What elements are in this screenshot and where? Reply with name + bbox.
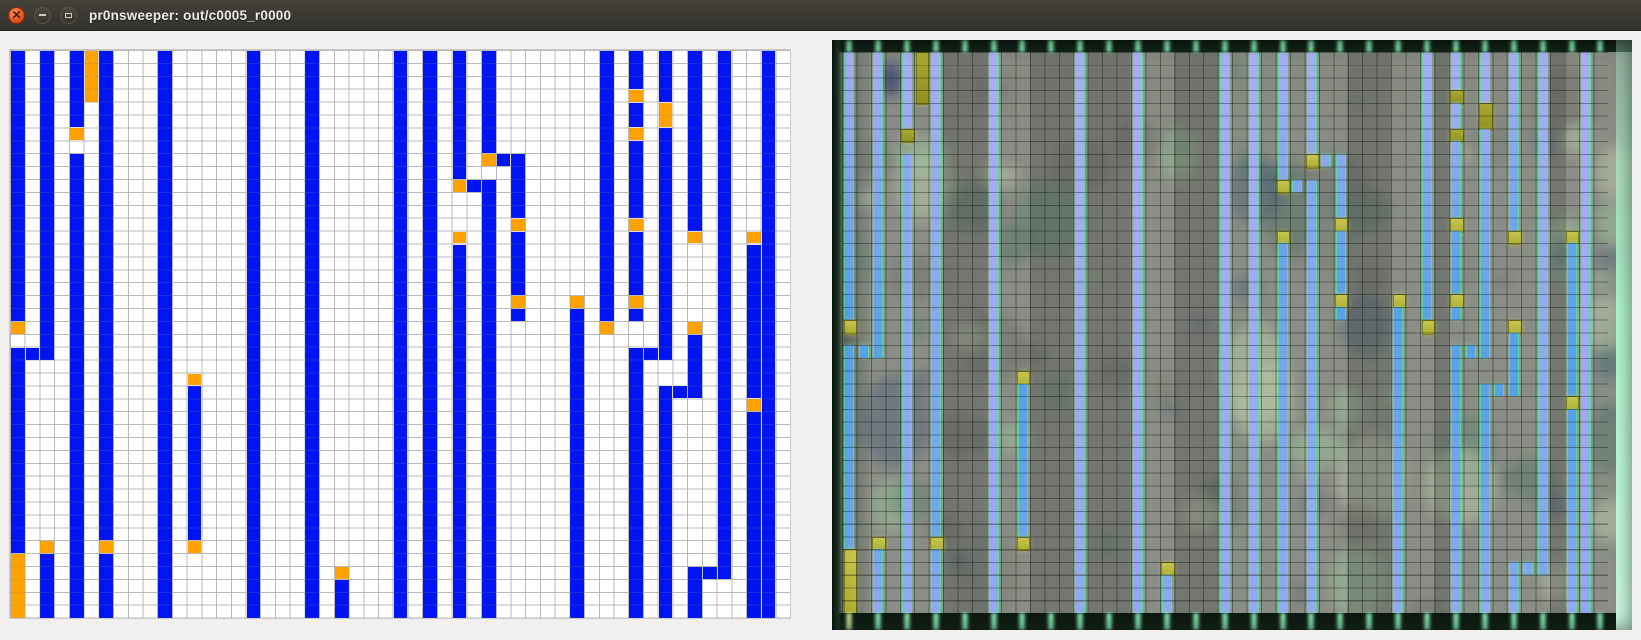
band-streak	[1423, 40, 1431, 52]
texture-blob	[1355, 259, 1384, 299]
band-streak	[1596, 613, 1604, 630]
die-flag-blob	[844, 549, 857, 615]
die-trace	[1480, 129, 1490, 359]
texture-blob	[1008, 339, 1037, 372]
band-streak	[1134, 40, 1142, 52]
texture-blob	[1352, 96, 1365, 106]
bit-mark-blue[interactable]	[659, 128, 673, 359]
bit-flag-orange[interactable]	[600, 322, 614, 334]
band-streak	[1047, 40, 1055, 52]
texture-blob	[853, 245, 874, 276]
die-trace	[1133, 52, 1143, 613]
die-trace	[1249, 52, 1259, 613]
die-photo-panel[interactable]	[832, 40, 1632, 630]
bit-flag-orange[interactable]	[188, 374, 202, 386]
pr0nsweeper-window: ✕ pr0nsweeper: out/c0005_r0000	[0, 0, 1641, 640]
bit-mark-blue[interactable]	[629, 232, 643, 296]
bit-mark-blue[interactable]	[70, 51, 84, 127]
bit-flag-orange[interactable]	[629, 90, 643, 102]
band-streak	[961, 613, 969, 630]
bit-mark-blue[interactable]	[305, 51, 319, 618]
bit-flag-orange[interactable]	[482, 154, 496, 166]
band-streak	[1394, 40, 1402, 52]
bit-mark-blue[interactable]	[394, 51, 408, 618]
bit-flag-orange[interactable]	[570, 296, 584, 308]
band-streak	[845, 613, 853, 630]
close-icon: ✕	[11, 9, 21, 21]
bit-flag-orange[interactable]	[511, 296, 525, 308]
texture-blob	[891, 137, 950, 175]
die-trace	[1075, 52, 1085, 613]
bit-flag-orange[interactable]	[40, 541, 54, 553]
band-streak	[1481, 613, 1489, 630]
band-streak	[1452, 613, 1460, 630]
texture-blob	[1035, 350, 1046, 364]
band-streak	[1221, 613, 1229, 630]
dark-column-zone	[1030, 52, 1073, 613]
bit-flag-orange[interactable]	[85, 51, 99, 102]
bit-flag-orange[interactable]	[511, 219, 525, 231]
bit-mark-blue[interactable]	[659, 386, 673, 617]
texture-blob	[1161, 402, 1177, 417]
dark-column-zone	[1174, 52, 1217, 613]
die-trace	[1494, 384, 1504, 397]
die-trace	[1278, 243, 1288, 613]
bit-mark-blue[interactable]	[511, 154, 525, 218]
bit-mark-blue[interactable]	[40, 51, 54, 360]
die-trace	[844, 345, 854, 549]
bit-mark-blue[interactable]	[11, 348, 25, 553]
bit-mark-blue[interactable]	[158, 51, 172, 618]
texture-blob	[1594, 347, 1619, 381]
die-trace	[1451, 307, 1461, 320]
dark-column-zone	[1434, 52, 1448, 613]
bit-mark-blue[interactable]	[762, 51, 776, 618]
die-trace	[931, 549, 941, 613]
die-trace	[1336, 231, 1346, 295]
texture-blob	[1596, 248, 1622, 269]
bit-flag-orange[interactable]	[11, 322, 25, 334]
die-flag-blob	[1306, 154, 1319, 169]
bit-mark-blue[interactable]	[247, 51, 261, 618]
bit-mark-blue[interactable]	[497, 154, 511, 166]
band-streak	[1568, 40, 1576, 52]
band-streak	[1105, 40, 1113, 52]
band-streak	[1365, 613, 1373, 630]
die-trace	[1422, 52, 1432, 320]
band-streak	[1481, 40, 1489, 52]
texture-blob	[1596, 200, 1632, 247]
die-trace	[931, 52, 941, 537]
die-trace	[1567, 409, 1577, 613]
die-flag-blob	[1479, 103, 1492, 131]
texture-blob	[1595, 145, 1632, 200]
bit-mark-blue[interactable]	[570, 309, 584, 618]
band-streak	[1336, 40, 1344, 52]
die-trace	[1509, 562, 1519, 613]
bit-mark-blue[interactable]	[688, 567, 702, 618]
die-flag-blob	[901, 129, 914, 144]
bit-flag-orange[interactable]	[453, 180, 467, 192]
band-streak	[1018, 613, 1026, 630]
bit-flag-orange[interactable]	[453, 232, 467, 244]
maximize-icon	[65, 13, 72, 18]
die-trace	[1393, 307, 1403, 613]
bit-mark-blue[interactable]	[659, 51, 673, 102]
die-trace	[1220, 52, 1230, 613]
die-trace	[844, 52, 854, 320]
texture-blob	[1331, 387, 1363, 430]
texture-blob	[1337, 507, 1381, 547]
texture-blob	[1042, 374, 1072, 411]
texture-blob	[951, 323, 987, 352]
bit-mark-blue[interactable]	[688, 51, 702, 231]
band-streak	[874, 40, 882, 52]
die-trace	[1162, 575, 1172, 613]
die-trace	[989, 52, 999, 613]
die-flag-blob	[1422, 320, 1435, 335]
die-trace	[1321, 154, 1331, 167]
die-trace	[1307, 180, 1317, 614]
die-trace	[873, 52, 883, 358]
bit-flag-orange[interactable]	[688, 232, 702, 244]
band-streak	[1192, 613, 1200, 630]
bit-mark-blue[interactable]	[40, 554, 54, 618]
band-streak	[874, 613, 882, 630]
window-title: pr0nsweeper: out/c0005_r0000	[89, 8, 291, 23]
band-streak	[990, 40, 998, 52]
band-streak	[1539, 613, 1547, 630]
die-flag-blob	[1277, 180, 1290, 195]
bit-mark-blue[interactable]	[482, 51, 496, 153]
texture-blob	[1085, 272, 1095, 285]
band-streak	[1192, 40, 1200, 52]
die-trace	[859, 345, 869, 358]
band-streak	[1596, 40, 1604, 52]
band-streak	[1076, 613, 1084, 630]
texture-blob	[1494, 271, 1512, 291]
bit-grid-panel[interactable]	[10, 50, 790, 618]
die-trace	[1567, 243, 1577, 396]
bit-flag-orange[interactable]	[99, 541, 113, 553]
die-trace	[1336, 154, 1346, 218]
texture-blob	[1502, 458, 1557, 500]
band-streak	[1365, 40, 1373, 52]
bit-mark-blue[interactable]	[629, 309, 643, 321]
bit-mark-blue[interactable]	[11, 51, 25, 321]
dark-column-zone	[1348, 52, 1391, 613]
titlebar[interactable]: ✕ pr0nsweeper: out/c0005_r0000	[0, 0, 1641, 31]
bit-mark-blue[interactable]	[629, 141, 643, 217]
dark-column-zone	[1088, 52, 1131, 613]
bit-mark-blue[interactable]	[188, 386, 202, 540]
bit-mark-blue[interactable]	[511, 232, 525, 296]
minimize-icon	[39, 14, 46, 16]
band-streak	[961, 40, 969, 52]
band-streak	[932, 40, 940, 52]
bit-mark-blue[interactable]	[467, 180, 481, 192]
texture-blob	[1193, 315, 1206, 331]
band-streak	[903, 40, 911, 52]
bit-mark-blue[interactable]	[703, 567, 717, 579]
bit-flag-orange[interactable]	[629, 296, 643, 308]
band-streak	[1250, 613, 1258, 630]
die-flag-blob	[1017, 537, 1030, 552]
die-flag-blob	[916, 52, 929, 105]
texture-blob	[980, 163, 1018, 189]
bit-mark-blue[interactable]	[718, 51, 732, 579]
band-streak	[1279, 40, 1287, 52]
texture-blob	[1586, 500, 1632, 544]
band-streak	[1568, 613, 1576, 630]
band-streak	[1307, 613, 1315, 630]
die-trace	[1480, 384, 1490, 614]
band-streak	[1163, 613, 1171, 630]
bit-flag-orange[interactable]	[659, 103, 673, 128]
bit-mark-blue[interactable]	[335, 580, 349, 618]
maximize-button[interactable]	[60, 7, 77, 24]
bit-flag-orange[interactable]	[629, 219, 643, 231]
die-trace	[1451, 52, 1461, 90]
texture-blob	[1150, 371, 1179, 412]
bit-flag-orange[interactable]	[70, 128, 84, 140]
texture-blob	[860, 375, 931, 468]
dark-column-zone	[1550, 52, 1564, 613]
bit-mark-blue[interactable]	[70, 154, 84, 617]
bit-mark-blue[interactable]	[747, 412, 761, 617]
die-trace	[1509, 333, 1519, 397]
bit-flag-orange[interactable]	[335, 567, 349, 579]
texture-blob	[1589, 273, 1610, 288]
bit-mark-blue[interactable]	[629, 103, 643, 128]
texture-blob	[1465, 264, 1479, 273]
texture-blob	[1364, 342, 1380, 359]
band-streak	[990, 613, 998, 630]
dark-column-zone	[943, 52, 986, 613]
bit-flag-orange[interactable]	[11, 554, 25, 618]
bit-mark-blue[interactable]	[688, 335, 702, 399]
texture-blob	[1291, 153, 1300, 161]
bit-flag-orange[interactable]	[747, 399, 761, 411]
die-trace	[1451, 345, 1461, 613]
band-streak	[1250, 40, 1258, 52]
texture-blob	[1601, 316, 1632, 379]
die-trace	[1278, 52, 1288, 180]
bit-mark-blue[interactable]	[99, 554, 113, 618]
bit-mark-blue[interactable]	[99, 51, 113, 540]
band-streak	[1452, 40, 1460, 52]
bit-flag-orange[interactable]	[688, 322, 702, 334]
die-trace	[1336, 307, 1346, 320]
die-trace	[1018, 384, 1028, 537]
die-flag-blob	[844, 320, 857, 335]
photo-left-edge	[832, 40, 842, 630]
bit-mark-blue[interactable]	[482, 180, 496, 618]
band-streak	[1163, 40, 1171, 52]
die-trace	[1523, 562, 1533, 575]
bit-mark-blue[interactable]	[644, 348, 658, 360]
die-flag-blob	[1508, 231, 1521, 246]
texture-blob	[1329, 545, 1386, 621]
die-trace	[1451, 141, 1461, 218]
die-trace	[1581, 52, 1591, 613]
photo-right-edge	[1616, 40, 1632, 630]
band-streak	[1047, 613, 1055, 630]
texture-blob	[1587, 405, 1632, 474]
minimize-button[interactable]	[34, 7, 51, 24]
texture-blob	[1159, 130, 1197, 181]
bit-mark-blue[interactable]	[511, 309, 525, 321]
band-streak	[1076, 40, 1084, 52]
band-streak	[1018, 40, 1026, 52]
die-trace	[1509, 52, 1519, 231]
band-streak	[845, 40, 853, 52]
texture-blob	[957, 533, 1017, 620]
band-streak	[1105, 613, 1113, 630]
bit-mark-blue[interactable]	[629, 51, 643, 89]
die-trace	[1292, 180, 1302, 193]
texture-blob	[1601, 406, 1613, 418]
die-trace	[1307, 52, 1317, 154]
bit-mark-blue[interactable]	[423, 51, 437, 618]
bit-flag-orange[interactable]	[629, 128, 643, 140]
dark-stain	[880, 62, 902, 96]
bit-mark-blue[interactable]	[26, 348, 40, 360]
bit-flag-orange[interactable]	[747, 232, 761, 244]
texture-blob	[1003, 472, 1014, 481]
bit-mark-blue[interactable]	[629, 348, 643, 618]
bit-mark-blue[interactable]	[600, 51, 614, 321]
band-streak	[903, 613, 911, 630]
band-streak	[1510, 40, 1518, 52]
die-trace	[1480, 52, 1490, 103]
band-streak	[1279, 613, 1287, 630]
texture-blob	[1173, 141, 1187, 153]
die-trace	[902, 52, 912, 129]
band-streak	[1510, 613, 1518, 630]
band-streak	[1394, 613, 1402, 630]
die-trace	[1538, 52, 1548, 575]
die-trace	[1466, 345, 1476, 358]
band-streak	[1336, 613, 1344, 630]
texture-blob	[1288, 427, 1346, 468]
die-trace	[1451, 231, 1461, 295]
die-trace	[1451, 103, 1461, 129]
band-streak	[1134, 613, 1142, 630]
band-streak	[1539, 40, 1547, 52]
close-button[interactable]: ✕	[8, 7, 25, 24]
band-streak	[1423, 613, 1431, 630]
bit-mark-blue[interactable]	[747, 245, 761, 399]
texture-blob	[1182, 496, 1226, 532]
texture-blob	[1095, 531, 1119, 557]
bit-flag-orange[interactable]	[188, 541, 202, 553]
band-streak	[1221, 40, 1229, 52]
bit-mark-blue[interactable]	[453, 245, 467, 618]
band-streak	[932, 613, 940, 630]
bit-mark-blue[interactable]	[453, 51, 467, 179]
band-streak	[1307, 40, 1315, 52]
texture-blob	[947, 551, 968, 573]
die-trace	[902, 154, 912, 613]
bit-mark-blue[interactable]	[673, 386, 687, 398]
die-trace	[873, 549, 883, 613]
